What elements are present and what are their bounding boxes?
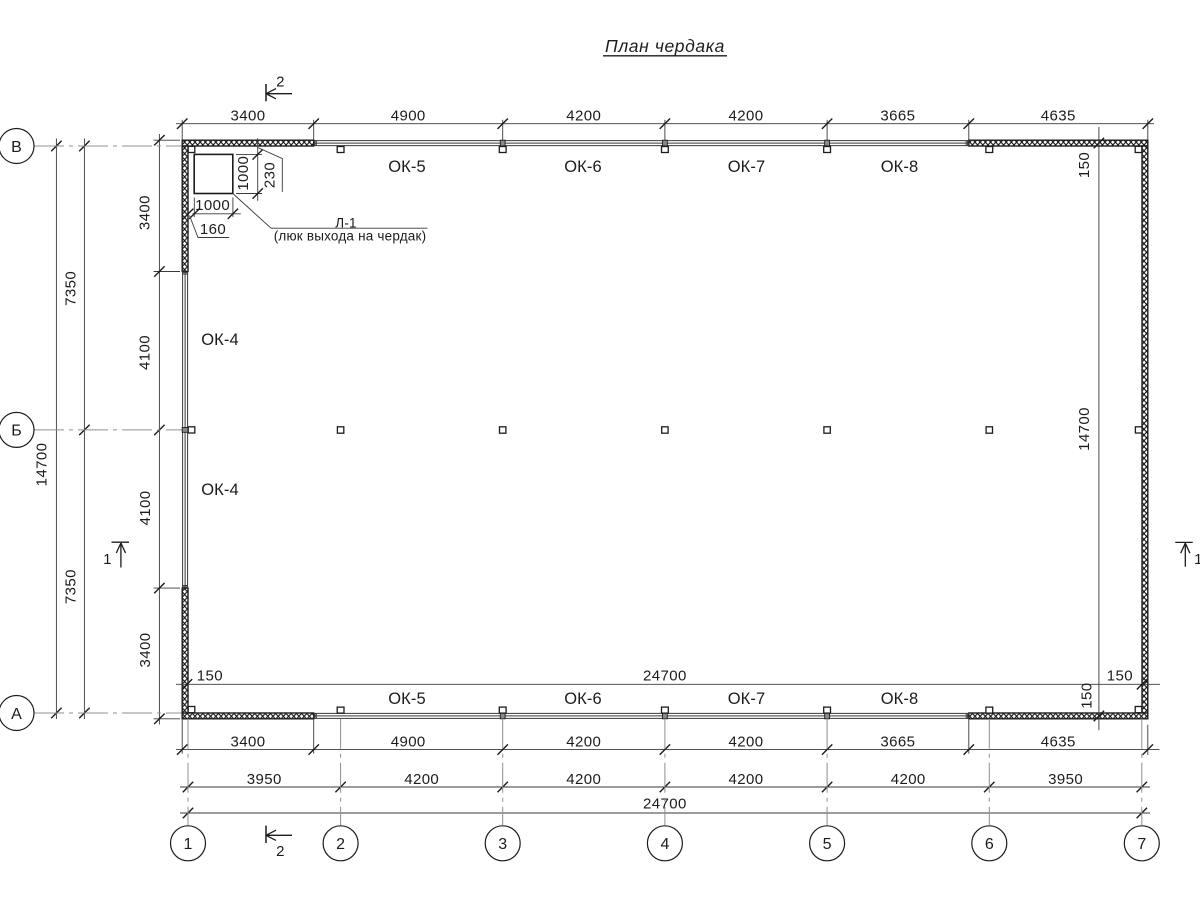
svg-text:1000: 1000 bbox=[195, 197, 230, 214]
svg-text:4200: 4200 bbox=[729, 771, 764, 788]
svg-text:2: 2 bbox=[276, 843, 285, 860]
svg-text:230: 230 bbox=[261, 162, 278, 188]
svg-text:4100: 4100 bbox=[137, 491, 154, 526]
svg-text:7350: 7350 bbox=[63, 271, 80, 306]
svg-text:7: 7 bbox=[1137, 836, 1146, 853]
svg-text:Б: Б bbox=[11, 423, 22, 440]
svg-text:4200: 4200 bbox=[891, 771, 926, 788]
svg-text:3950: 3950 bbox=[1048, 771, 1083, 788]
svg-text:1000: 1000 bbox=[235, 156, 252, 191]
svg-text:4200: 4200 bbox=[566, 108, 601, 125]
svg-text:ОК-8: ОК-8 bbox=[881, 158, 919, 176]
svg-text:4900: 4900 bbox=[391, 733, 426, 750]
svg-text:ОК-6: ОК-6 bbox=[564, 158, 602, 176]
svg-text:3: 3 bbox=[498, 836, 507, 853]
svg-text:ОК-6: ОК-6 bbox=[564, 690, 602, 708]
svg-text:1: 1 bbox=[184, 836, 193, 853]
svg-text:(люк выхода на чердак): (люк выхода на чердак) bbox=[274, 228, 427, 243]
svg-text:160: 160 bbox=[200, 221, 226, 238]
svg-text:ОК-5: ОК-5 bbox=[388, 158, 426, 176]
svg-text:1: 1 bbox=[1194, 551, 1200, 568]
svg-text:150: 150 bbox=[197, 668, 223, 685]
svg-text:4900: 4900 bbox=[391, 108, 426, 125]
svg-text:1: 1 bbox=[103, 551, 112, 568]
svg-text:6: 6 bbox=[985, 836, 994, 853]
svg-text:2: 2 bbox=[336, 836, 345, 853]
svg-text:24700: 24700 bbox=[643, 668, 687, 685]
svg-text:3400: 3400 bbox=[231, 733, 266, 750]
svg-text:4200: 4200 bbox=[404, 771, 439, 788]
svg-text:ОК-4: ОК-4 bbox=[201, 481, 239, 499]
svg-text:4200: 4200 bbox=[729, 108, 764, 125]
svg-text:150: 150 bbox=[1107, 668, 1133, 685]
svg-text:ОК-7: ОК-7 bbox=[728, 158, 766, 176]
svg-text:150: 150 bbox=[1078, 682, 1095, 708]
svg-text:А: А bbox=[11, 706, 22, 723]
svg-text:ОК-4: ОК-4 bbox=[201, 331, 239, 349]
svg-text:ОК-7: ОК-7 bbox=[728, 690, 766, 708]
svg-text:4200: 4200 bbox=[566, 771, 601, 788]
svg-text:4200: 4200 bbox=[729, 733, 764, 750]
svg-text:ОК-8: ОК-8 bbox=[881, 690, 919, 708]
svg-text:14700: 14700 bbox=[34, 443, 51, 487]
svg-text:3400: 3400 bbox=[137, 633, 154, 668]
svg-text:4100: 4100 bbox=[137, 335, 154, 370]
svg-text:5: 5 bbox=[823, 836, 832, 853]
svg-text:План чердака: План чердака bbox=[605, 36, 725, 56]
svg-text:7350: 7350 bbox=[63, 569, 80, 604]
svg-text:4200: 4200 bbox=[566, 733, 601, 750]
svg-text:3665: 3665 bbox=[880, 108, 915, 125]
svg-text:2: 2 bbox=[276, 74, 285, 91]
svg-text:3950: 3950 bbox=[247, 771, 282, 788]
svg-text:4635: 4635 bbox=[1041, 108, 1076, 125]
svg-text:3665: 3665 bbox=[880, 733, 915, 750]
svg-text:150: 150 bbox=[1076, 152, 1093, 178]
svg-text:4635: 4635 bbox=[1041, 733, 1076, 750]
svg-text:ОК-5: ОК-5 bbox=[388, 690, 426, 708]
svg-text:3400: 3400 bbox=[137, 195, 154, 230]
svg-text:4: 4 bbox=[660, 836, 669, 853]
svg-text:В: В bbox=[11, 139, 22, 156]
svg-text:3400: 3400 bbox=[231, 108, 266, 125]
svg-text:14700: 14700 bbox=[1076, 407, 1093, 451]
